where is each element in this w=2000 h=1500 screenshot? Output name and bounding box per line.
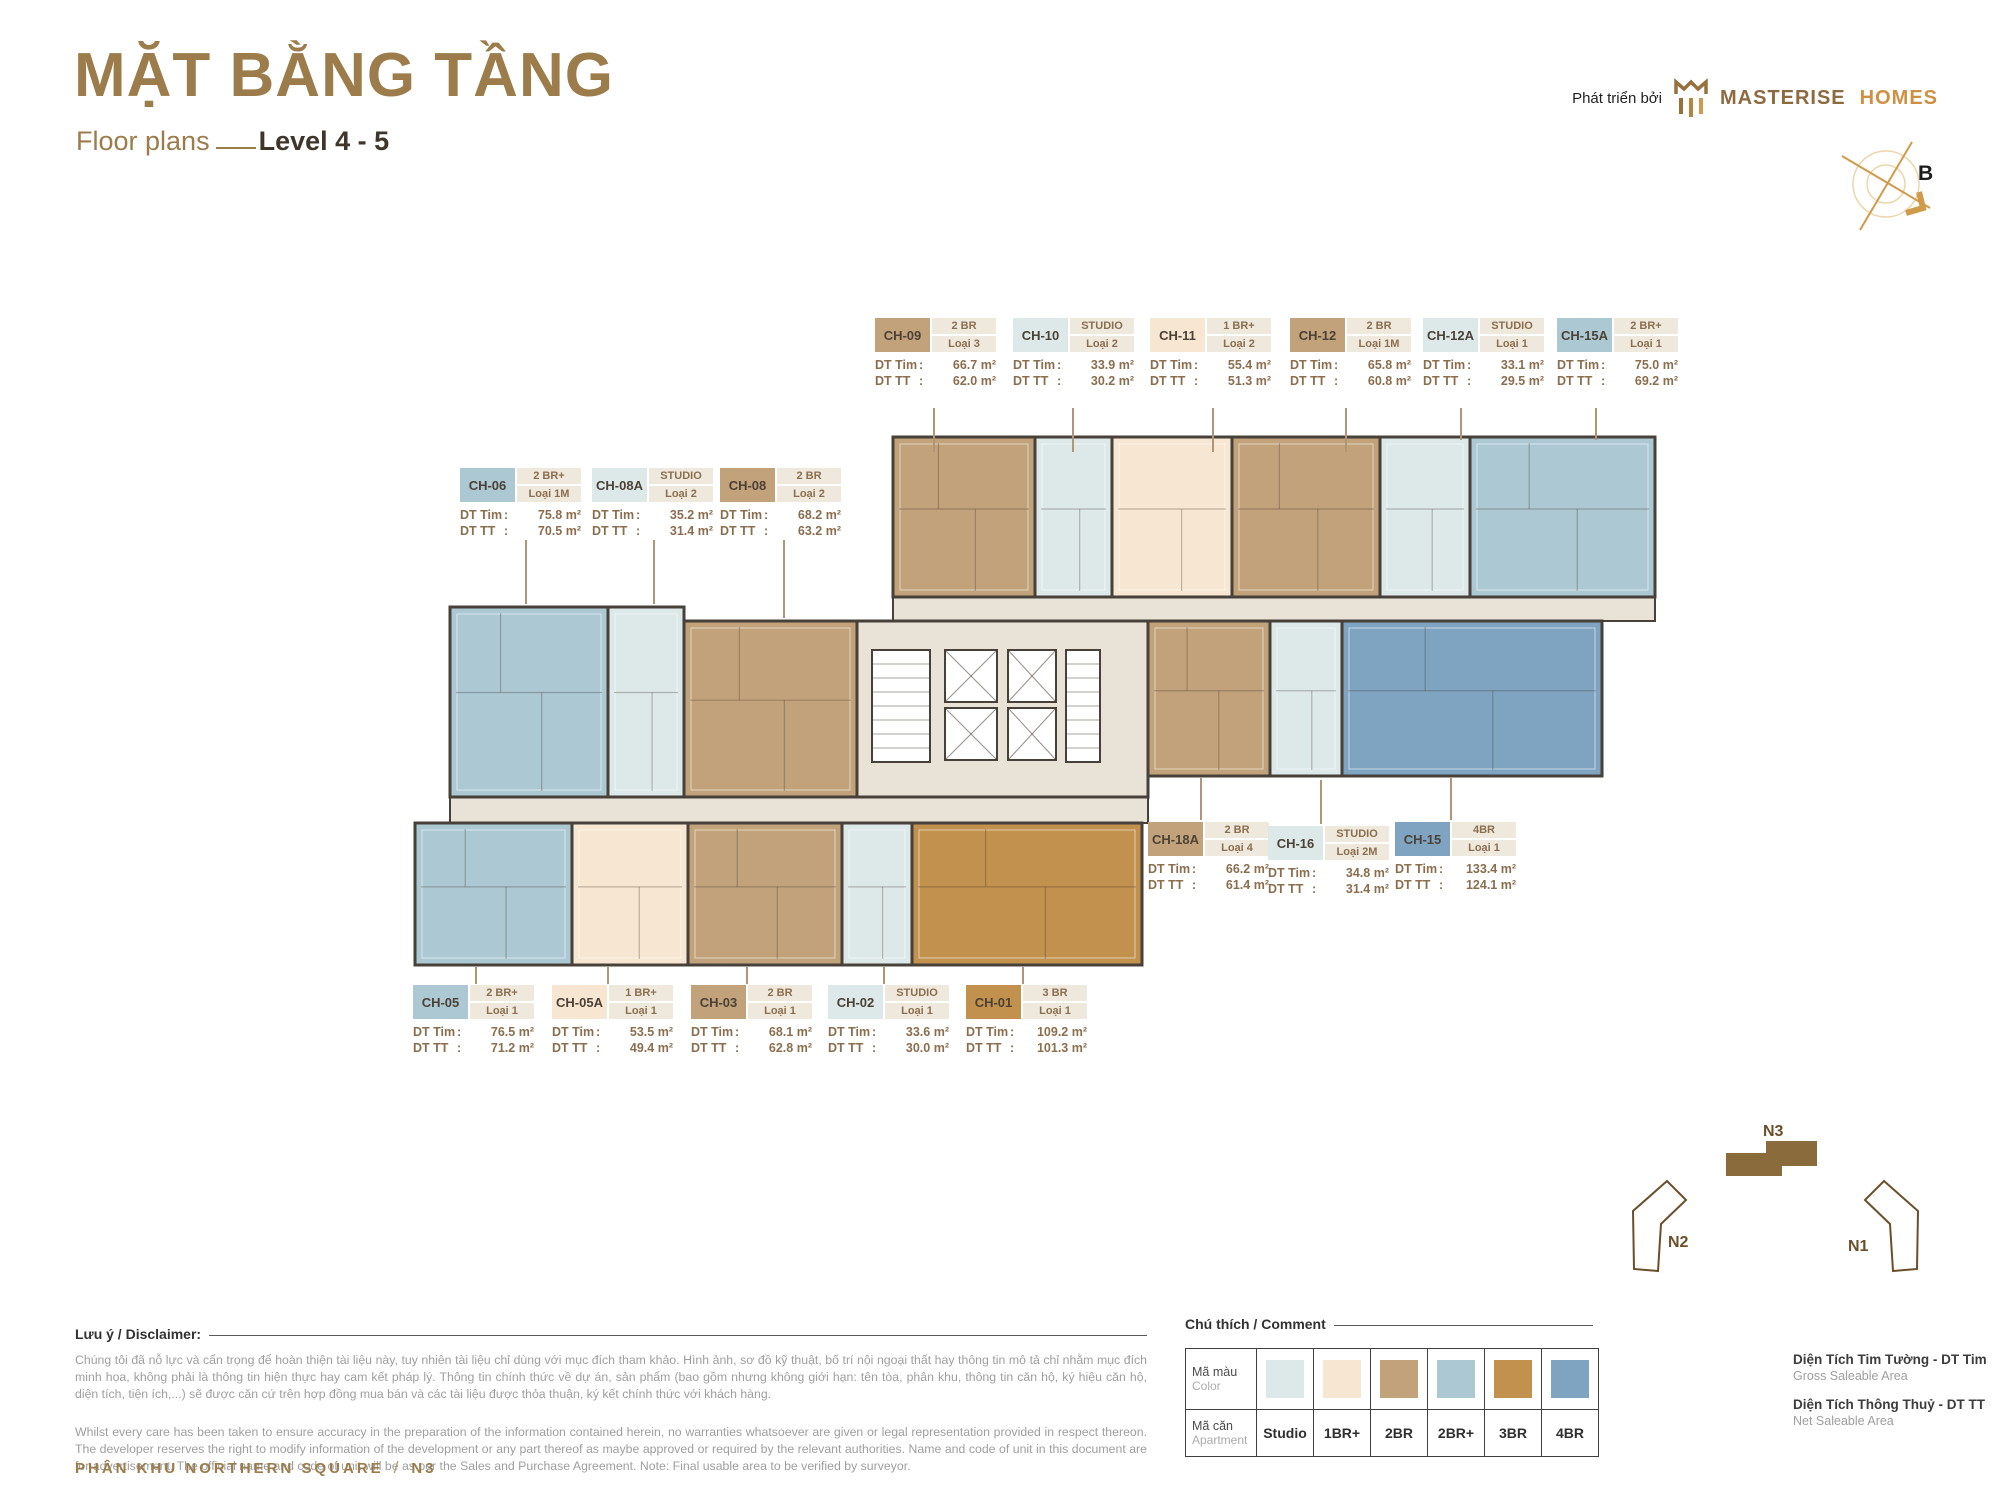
unit-variant-label: Loại 1: [609, 1003, 673, 1019]
floorplan-unit-CH-15: [1342, 621, 1602, 776]
brand-primary: MASTERISE: [1720, 87, 1846, 110]
unit-type-label: 1 BR+: [1207, 318, 1271, 334]
unit-type: STUDIOLoại 2: [1070, 318, 1134, 352]
subtitle-divider: [216, 147, 256, 149]
developer-prefix: Phát triển bởi: [1572, 90, 1662, 107]
legend-swatch-2br: [1371, 1349, 1428, 1410]
unit-code: CH-03: [691, 985, 746, 1019]
callout-leader-CH-08: [783, 540, 785, 618]
unit-type: 2 BR+Loại 1M: [517, 468, 581, 502]
floorplan-unit-CH-10: [1035, 437, 1112, 597]
callout-leader-CH-05: [475, 967, 477, 984]
legend-swatch-studio: [1257, 1349, 1314, 1410]
legend-label-3br: 3BR: [1485, 1410, 1542, 1457]
unit-net-area: DT TT:30.2 m²: [1013, 374, 1134, 388]
legend-heading-text: Chú thích / Comment: [1185, 1316, 1326, 1332]
footer-block-text: N3: [411, 1460, 436, 1477]
unit-gross-area: DT Tim:75.8 m²: [460, 508, 581, 522]
disclaimer-heading-text: Lưu ý / Disclaimer:: [75, 1326, 201, 1342]
unit-net-area: DT TT:31.4 m²: [1268, 882, 1389, 896]
unit-net-area: DT TT:61.4 m²: [1148, 878, 1269, 892]
unit-type: 2 BR+Loại 1: [470, 985, 534, 1019]
unit-variant-label: Loại 1: [1452, 840, 1516, 856]
callout-leader-CH-12A: [1460, 408, 1462, 440]
unit-code: CH-11: [1150, 318, 1205, 352]
color-swatch: [1266, 1360, 1304, 1398]
floorplan-page: MẶT BẰNG TẦNG Floor plans Level 4 - 5 Ph…: [0, 0, 2000, 1500]
legend-heading: Chú thích / Comment: [1185, 1316, 1593, 1332]
unit-type: 2 BRLoại 1: [748, 985, 812, 1019]
floorplan-unit-CH-08A: [608, 607, 684, 797]
unit-callout-CH-08A: CH-08ASTUDIOLoại 2DT Tim:35.2 m²DT TT:31…: [592, 468, 713, 538]
unit-variant-label: Loại 3: [932, 336, 996, 352]
unit-code: CH-15A: [1557, 318, 1612, 352]
unit-variant-label: Loại 1: [470, 1003, 534, 1019]
unit-gross-area: DT Tim:53.5 m²: [552, 1025, 673, 1039]
unit-variant-label: Loại 4: [1205, 840, 1269, 856]
unit-gross-area: DT Tim:66.2 m²: [1148, 862, 1269, 876]
floorplan-unit-CH-01: [912, 823, 1142, 965]
legend-swatch-2brp: [1428, 1349, 1485, 1410]
callout-leader-CH-10: [1072, 408, 1074, 452]
unit-code: CH-09: [875, 318, 930, 352]
callout-leader-CH-05A: [607, 967, 609, 984]
unit-variant-label: Loại 2: [1207, 336, 1271, 352]
siteplan-label-n2: N2: [1668, 1234, 1689, 1251]
unit-type: 2 BRLoại 3: [932, 318, 996, 352]
unit-code: CH-12: [1290, 318, 1345, 352]
unit-type: 2 BRLoại 1M: [1347, 318, 1411, 352]
unit-net-area: DT TT:60.8 m²: [1290, 374, 1411, 388]
floorplan-unit-CH-12A: [1380, 437, 1470, 597]
unit-type-label: STUDIO: [885, 985, 949, 1001]
callout-leader-CH-01: [1022, 967, 1024, 984]
unit-net-area: DT TT:124.1 m²: [1395, 878, 1516, 892]
color-swatch: [1380, 1360, 1418, 1398]
area-definitions: Diện Tích Tim Tường - DT Tim Gross Salea…: [1793, 1352, 1987, 1428]
unit-callout-CH-06: CH-062 BR+Loại 1MDT Tim:75.8 m²DT TT:70.…: [460, 468, 581, 538]
callout-leader-CH-15: [1450, 778, 1452, 820]
unit-type: 3 BRLoại 1: [1023, 985, 1087, 1019]
siteplan-block-n3: [1766, 1141, 1817, 1166]
unit-type-label: 2 BR: [1347, 318, 1411, 334]
callout-leader-CH-03: [746, 967, 748, 984]
unit-code: CH-02: [828, 985, 883, 1019]
unit-net-area: DT TT:69.2 m²: [1557, 374, 1678, 388]
apartment-type-label: 4BR: [1542, 1410, 1598, 1456]
area-def-net: Diện Tích Thông Thuỷ - DT TT Net Saleabl…: [1793, 1397, 1987, 1428]
unit-code: CH-12A: [1423, 318, 1478, 352]
callout-leader-CH-11: [1212, 408, 1214, 452]
unit-gross-area: DT Tim:66.7 m²: [875, 358, 996, 372]
callout-leader-CH-06: [525, 540, 527, 604]
disclaimer-heading: Lưu ý / Disclaimer:: [75, 1326, 1147, 1342]
floorplan-unit-CH-09: [893, 437, 1035, 597]
heading-rule: [209, 1335, 1147, 1336]
callout-leader-CH-15A: [1595, 408, 1597, 440]
legend-table: Mã màu Color Mã căn Apartment Studio1BR+…: [1185, 1348, 1599, 1457]
unit-variant-label: Loại 1: [748, 1003, 812, 1019]
unit-type: 1 BR+Loại 1: [609, 985, 673, 1019]
unit-variant-label: Loại 1M: [517, 486, 581, 502]
footer-zone-label: PHÂN KHU NORTHERN SQUARE / N3: [75, 1458, 437, 1478]
unit-type-label: 3 BR: [1023, 985, 1087, 1001]
page-title: MẶT BẰNG TẦNG: [74, 40, 614, 111]
unit-type-label: 2 BR: [748, 985, 812, 1001]
callout-leader-CH-12: [1345, 408, 1347, 452]
unit-variant-label: Loại 2: [777, 486, 841, 502]
unit-gross-area: DT Tim:76.5 m²: [413, 1025, 534, 1039]
unit-variant-label: Loại 1: [1023, 1003, 1087, 1019]
developer-brand: Phát triển bởi MASTERISE HOMES: [1572, 78, 1938, 118]
apartment-type-label: 2BR+: [1428, 1410, 1484, 1456]
floorplan-unit-CH-11: [1112, 437, 1232, 597]
legend-swatch-3br: [1485, 1349, 1542, 1410]
disclaimer-vietnamese: Chúng tôi đã nỗ lực và cẩn trọng để hoàn…: [75, 1352, 1147, 1403]
floorplan-unit-CH-06: [450, 607, 608, 797]
unit-type: STUDIOLoại 2M: [1325, 826, 1389, 860]
siteplan-label-n1: N1: [1848, 1238, 1869, 1255]
apartment-type-label: 2BR: [1371, 1410, 1427, 1456]
floorplan-unit-CH-08: [684, 621, 857, 797]
unit-variant-label: Loại 2: [1070, 336, 1134, 352]
floorplan-unit-CH-16: [1270, 621, 1342, 776]
unit-gross-area: DT Tim:35.2 m²: [592, 508, 713, 522]
unit-type: 2 BRLoại 2: [777, 468, 841, 502]
unit-type: 1 BR+Loại 2: [1207, 318, 1271, 352]
floorplan-corridor: [893, 597, 1655, 621]
unit-type-label: 4BR: [1452, 822, 1516, 838]
unit-type: 2 BR+Loại 1: [1614, 318, 1678, 352]
unit-code: CH-08A: [592, 468, 647, 502]
unit-type-label: STUDIO: [1480, 318, 1544, 334]
legend-label-1brp: 1BR+: [1314, 1410, 1371, 1457]
heading-rule: [1334, 1325, 1593, 1326]
unit-net-area: DT TT:51.3 m²: [1150, 374, 1271, 388]
unit-callout-CH-15A: CH-15A2 BR+Loại 1DT Tim:75.0 m²DT TT:69.…: [1557, 318, 1678, 388]
unit-net-area: DT TT:49.4 m²: [552, 1041, 673, 1055]
unit-callout-CH-11: CH-111 BR+Loại 2DT Tim:55.4 m²DT TT:51.3…: [1150, 318, 1271, 388]
unit-code: CH-06: [460, 468, 515, 502]
page-level: Level 4 - 5: [259, 126, 390, 157]
unit-gross-area: DT Tim:33.9 m²: [1013, 358, 1134, 372]
apartment-type-label: 3BR: [1485, 1410, 1541, 1456]
unit-type-label: 2 BR+: [470, 985, 534, 1001]
unit-callout-CH-15: CH-154BRLoại 1DT Tim:133.4 m²DT TT:124.1…: [1395, 822, 1516, 892]
unit-callout-CH-03: CH-032 BRLoại 1DT Tim:68.1 m²DT TT:62.8 …: [691, 985, 812, 1055]
unit-net-area: DT TT:63.2 m²: [720, 524, 841, 538]
unit-gross-area: DT Tim:109.2 m²: [966, 1025, 1087, 1039]
unit-variant-label: Loại 1: [1614, 336, 1678, 352]
unit-type: STUDIOLoại 1: [1480, 318, 1544, 352]
unit-gross-area: DT Tim:34.8 m²: [1268, 866, 1389, 880]
unit-code: CH-08: [720, 468, 775, 502]
area-def-gross: Diện Tích Tim Tường - DT Tim Gross Salea…: [1793, 1352, 1987, 1383]
callout-leader-CH-02: [883, 967, 885, 984]
unit-callout-CH-18A: CH-18A2 BRLoại 4DT Tim:66.2 m²DT TT:61.4…: [1148, 822, 1269, 892]
floorplan-unit-CH-12: [1232, 437, 1380, 597]
unit-gross-area: DT Tim:65.8 m²: [1290, 358, 1411, 372]
callout-leader-CH-16: [1320, 780, 1322, 824]
unit-gross-area: DT Tim:68.1 m²: [691, 1025, 812, 1039]
unit-variant-label: Loại 1: [885, 1003, 949, 1019]
legend-swatch-4br: [1542, 1349, 1599, 1410]
unit-callout-CH-05: CH-052 BR+Loại 1DT Tim:76.5 m²DT TT:71.2…: [413, 985, 534, 1055]
page-subtitle: Floor plans: [76, 126, 210, 157]
floorplan-unit-CH-02: [842, 823, 912, 965]
unit-callout-CH-10: CH-10STUDIOLoại 2DT Tim:33.9 m²DT TT:30.…: [1013, 318, 1134, 388]
unit-net-area: DT TT:71.2 m²: [413, 1041, 534, 1055]
unit-callout-CH-09: CH-092 BRLoại 3DT Tim:66.7 m²DT TT:62.0 …: [875, 318, 996, 388]
unit-net-area: DT TT:101.3 m²: [966, 1041, 1087, 1055]
compass-north-label: B: [1918, 162, 1933, 185]
brand-secondary: HOMES: [1860, 87, 1938, 110]
unit-code: CH-05A: [552, 985, 607, 1019]
callout-leader-CH-09: [933, 408, 935, 452]
floorplan-unit-CH-05A: [572, 823, 688, 965]
unit-type-label: 2 BR: [1205, 822, 1269, 838]
unit-gross-area: DT Tim:133.4 m²: [1395, 862, 1516, 876]
unit-callout-CH-08: CH-082 BRLoại 2DT Tim:68.2 m²DT TT:63.2 …: [720, 468, 841, 538]
unit-type-label: 1 BR+: [609, 985, 673, 1001]
floorplan-unit-CH-05: [415, 823, 572, 965]
unit-callout-CH-01: CH-013 BRLoại 1DT Tim:109.2 m²DT TT:101.…: [966, 985, 1087, 1055]
unit-gross-area: DT Tim:55.4 m²: [1150, 358, 1271, 372]
unit-type-label: 2 BR+: [517, 468, 581, 484]
unit-callout-CH-12A: CH-12ASTUDIOLoại 1DT Tim:33.1 m²DT TT:29…: [1423, 318, 1544, 388]
unit-callout-CH-12: CH-122 BRLoại 1MDT Tim:65.8 m²DT TT:60.8…: [1290, 318, 1411, 388]
unit-gross-area: DT Tim:68.2 m²: [720, 508, 841, 522]
legend-label-2brp: 2BR+: [1428, 1410, 1485, 1457]
unit-code: CH-16: [1268, 826, 1323, 860]
unit-code: CH-15: [1395, 822, 1450, 856]
unit-net-area: DT TT:31.4 m²: [592, 524, 713, 538]
page-subtitle-row: Floor plans Level 4 - 5: [76, 126, 389, 157]
legend-swatch-1brp: [1314, 1349, 1371, 1410]
unit-gross-area: DT Tim:33.6 m²: [828, 1025, 949, 1039]
legend-label-4br: 4BR: [1542, 1410, 1599, 1457]
compass-icon: B: [1838, 138, 1948, 238]
unit-type: 2 BRLoại 4: [1205, 822, 1269, 856]
unit-variant-label: Loại 1: [1480, 336, 1544, 352]
unit-net-area: DT TT:30.0 m²: [828, 1041, 949, 1055]
unit-type: 4BRLoại 1: [1452, 822, 1516, 856]
siteplan-block-n1: [1865, 1181, 1918, 1271]
unit-callout-CH-05A: CH-05A1 BR+Loại 1DT Tim:53.5 m²DT TT:49.…: [552, 985, 673, 1055]
color-swatch: [1323, 1360, 1361, 1398]
masterise-logo-icon: [1672, 78, 1710, 118]
unit-type-label: STUDIO: [1070, 318, 1134, 334]
unit-type: STUDIOLoại 2: [649, 468, 713, 502]
footer-separator: /: [394, 1458, 402, 1478]
floorplan-corridor: [450, 797, 1148, 823]
siteplan-label-n3: N3: [1763, 1123, 1784, 1140]
unit-net-area: DT TT:70.5 m²: [460, 524, 581, 538]
color-swatch: [1551, 1360, 1589, 1398]
callout-leader-CH-08A: [653, 540, 655, 604]
callout-leader-CH-18A: [1200, 778, 1202, 820]
color-swatch: [1437, 1360, 1475, 1398]
unit-variant-label: Loại 2: [649, 486, 713, 502]
unit-code: CH-18A: [1148, 822, 1203, 856]
legend-label-2br: 2BR: [1371, 1410, 1428, 1457]
unit-variant-label: Loại 2M: [1325, 844, 1389, 860]
unit-callout-CH-16: CH-16STUDIOLoại 2MDT Tim:34.8 m²DT TT:31…: [1268, 826, 1389, 896]
floorplan-unit-CH-18A: [1148, 621, 1270, 776]
unit-type: STUDIOLoại 1: [885, 985, 949, 1019]
legend-label-studio: Studio: [1257, 1410, 1314, 1457]
unit-type-label: 2 BR: [777, 468, 841, 484]
siteplan-key: N3 N2 N1: [1630, 1095, 1950, 1305]
unit-variant-label: Loại 1M: [1347, 336, 1411, 352]
unit-type-label: 2 BR+: [1614, 318, 1678, 334]
unit-type-label: STUDIO: [649, 468, 713, 484]
unit-type-label: 2 BR: [932, 318, 996, 334]
unit-net-area: DT TT:62.0 m²: [875, 374, 996, 388]
unit-gross-area: DT Tim:33.1 m²: [1423, 358, 1544, 372]
floorplan-unit-CH-03: [688, 823, 842, 965]
unit-type-label: STUDIO: [1325, 826, 1389, 842]
legend-color-row-label: Mã màu Color: [1186, 1349, 1257, 1410]
siteplan-block-n2: [1633, 1181, 1686, 1271]
floorplan-unit-CH-15A: [1470, 437, 1655, 597]
unit-code: CH-01: [966, 985, 1021, 1019]
unit-gross-area: DT Tim:75.0 m²: [1557, 358, 1678, 372]
unit-net-area: DT TT:29.5 m²: [1423, 374, 1544, 388]
unit-callout-CH-02: CH-02STUDIOLoại 1DT Tim:33.6 m²DT TT:30.…: [828, 985, 949, 1055]
unit-code: CH-05: [413, 985, 468, 1019]
unit-code: CH-10: [1013, 318, 1068, 352]
apartment-type-label: Studio: [1257, 1410, 1313, 1456]
unit-net-area: DT TT:62.8 m²: [691, 1041, 812, 1055]
apartment-type-label: 1BR+: [1314, 1410, 1370, 1456]
footer-zone-text: PHÂN KHU NORTHERN SQUARE: [75, 1460, 384, 1477]
color-swatch: [1494, 1360, 1532, 1398]
legend-apartment-row-label: Mã căn Apartment: [1186, 1410, 1257, 1457]
